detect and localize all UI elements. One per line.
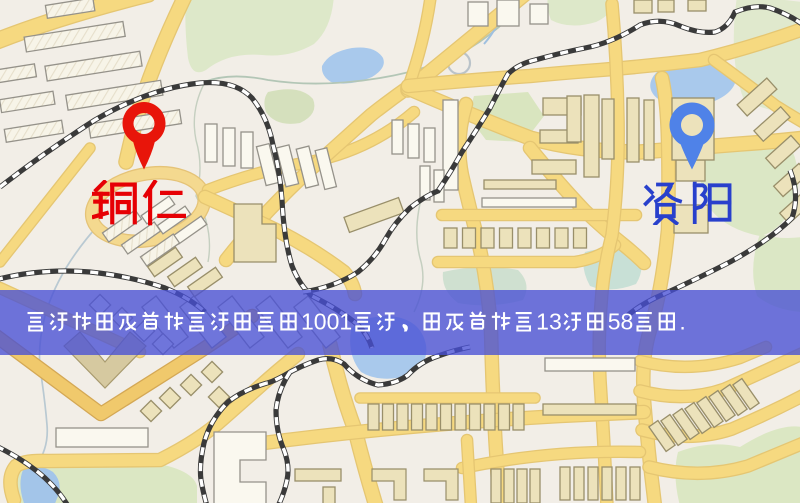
svg-text:.: . <box>679 309 685 335</box>
svg-text:13: 13 <box>536 309 562 335</box>
svg-text:1001: 1001 <box>301 309 352 335</box>
svg-text:58: 58 <box>608 309 634 335</box>
